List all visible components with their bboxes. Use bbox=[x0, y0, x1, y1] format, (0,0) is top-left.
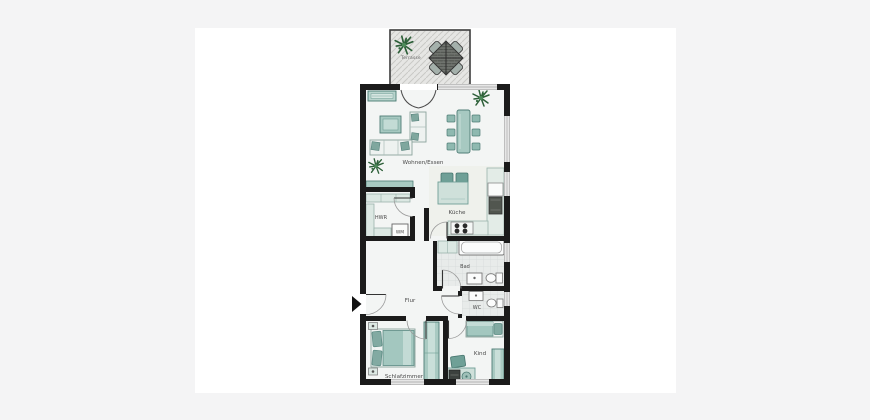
kitchen-table bbox=[438, 182, 468, 204]
single-bed bbox=[466, 321, 503, 337]
window-bad bbox=[504, 243, 510, 262]
bathtub bbox=[459, 240, 504, 255]
wc-sink bbox=[469, 292, 483, 301]
nightstand bbox=[369, 368, 378, 375]
double-bed bbox=[371, 329, 415, 367]
window-schlafzimmer bbox=[391, 379, 424, 385]
lowboard bbox=[366, 181, 413, 188]
window-wc bbox=[504, 292, 510, 306]
wm-label: WM bbox=[396, 230, 404, 236]
kind-label: Kind bbox=[474, 351, 487, 357]
coffee-table bbox=[380, 116, 401, 133]
dining-table bbox=[457, 110, 470, 153]
wohnen-essen-label: Wohnen/Essen bbox=[403, 160, 444, 166]
desk-chair bbox=[450, 355, 465, 368]
washing-machine: WM bbox=[392, 224, 408, 238]
window-top bbox=[438, 84, 497, 90]
hwr-shelf-left bbox=[366, 204, 374, 238]
bad-label: Bad bbox=[460, 264, 470, 270]
floorplan-svg: Terrasse bbox=[0, 0, 870, 420]
nightstand bbox=[369, 323, 378, 330]
wc-label: WC bbox=[473, 305, 482, 311]
dining-set bbox=[447, 110, 480, 153]
window-living-right bbox=[504, 116, 510, 162]
stove bbox=[451, 222, 473, 234]
sideboard bbox=[368, 91, 396, 101]
kitchen-sink bbox=[489, 197, 502, 214]
terrasse-label: Terrasse bbox=[400, 55, 421, 60]
kueche-label: Küche bbox=[449, 210, 467, 216]
wardrobe bbox=[492, 349, 504, 383]
kitchen-appliance bbox=[488, 183, 503, 196]
hwr-label: HWR bbox=[375, 215, 388, 221]
floorplan-screenshot: Terrasse bbox=[0, 0, 870, 420]
kitchen-table-set bbox=[438, 173, 468, 204]
bath-sink bbox=[467, 273, 482, 284]
room-terrasse: Terrasse bbox=[390, 30, 473, 87]
window-kind bbox=[456, 379, 489, 385]
window-kitchen bbox=[504, 172, 510, 196]
bath-toilet bbox=[486, 273, 503, 283]
flur-label: Flur bbox=[405, 298, 416, 304]
